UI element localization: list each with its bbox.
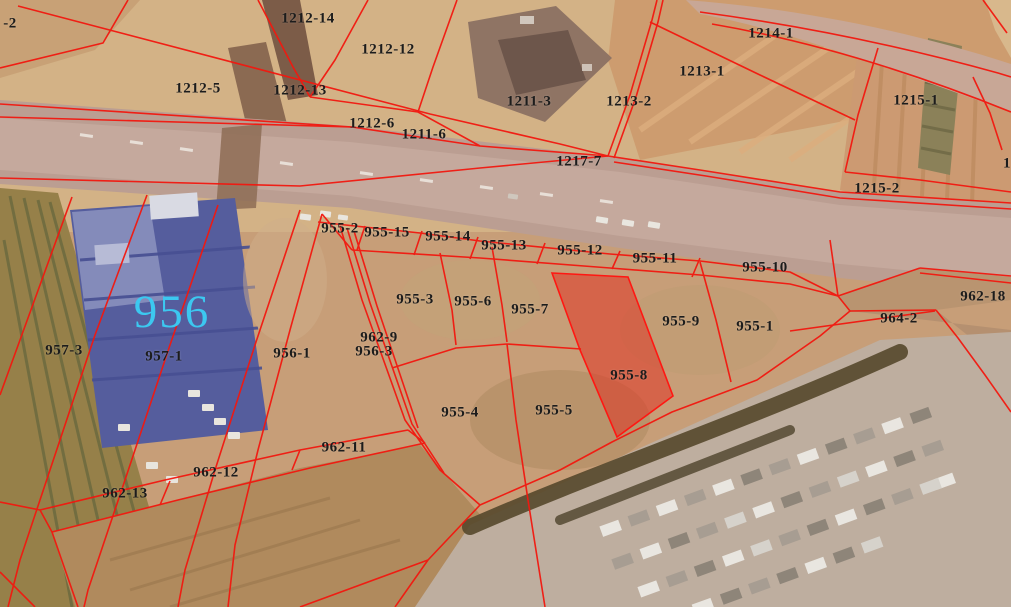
cadastral-map-viewport[interactable]: 956 -21212-141212-121212-51212-131212-61… [0,0,1011,607]
area-number-956: 956 [134,285,211,339]
